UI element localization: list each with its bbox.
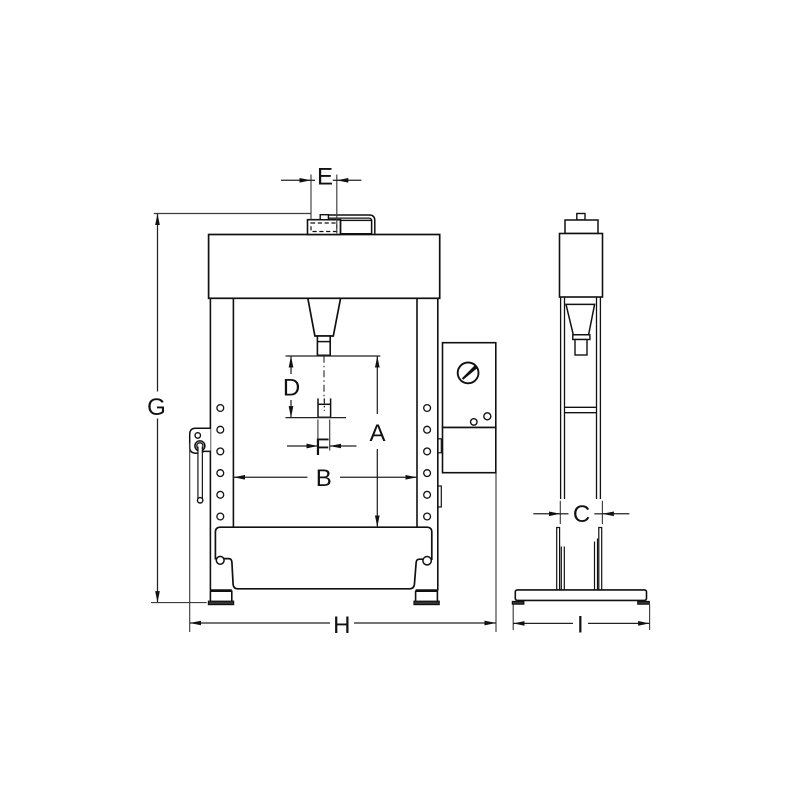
- svg-text:C: C: [573, 501, 590, 528]
- svg-text:D: D: [283, 375, 300, 402]
- svg-text:G: G: [147, 394, 166, 421]
- svg-text:A: A: [369, 420, 385, 447]
- svg-text:E: E: [317, 163, 333, 190]
- svg-text:B: B: [316, 465, 332, 492]
- svg-text:F: F: [315, 434, 330, 461]
- svg-text:I: I: [577, 612, 584, 639]
- svg-text:H: H: [333, 612, 350, 639]
